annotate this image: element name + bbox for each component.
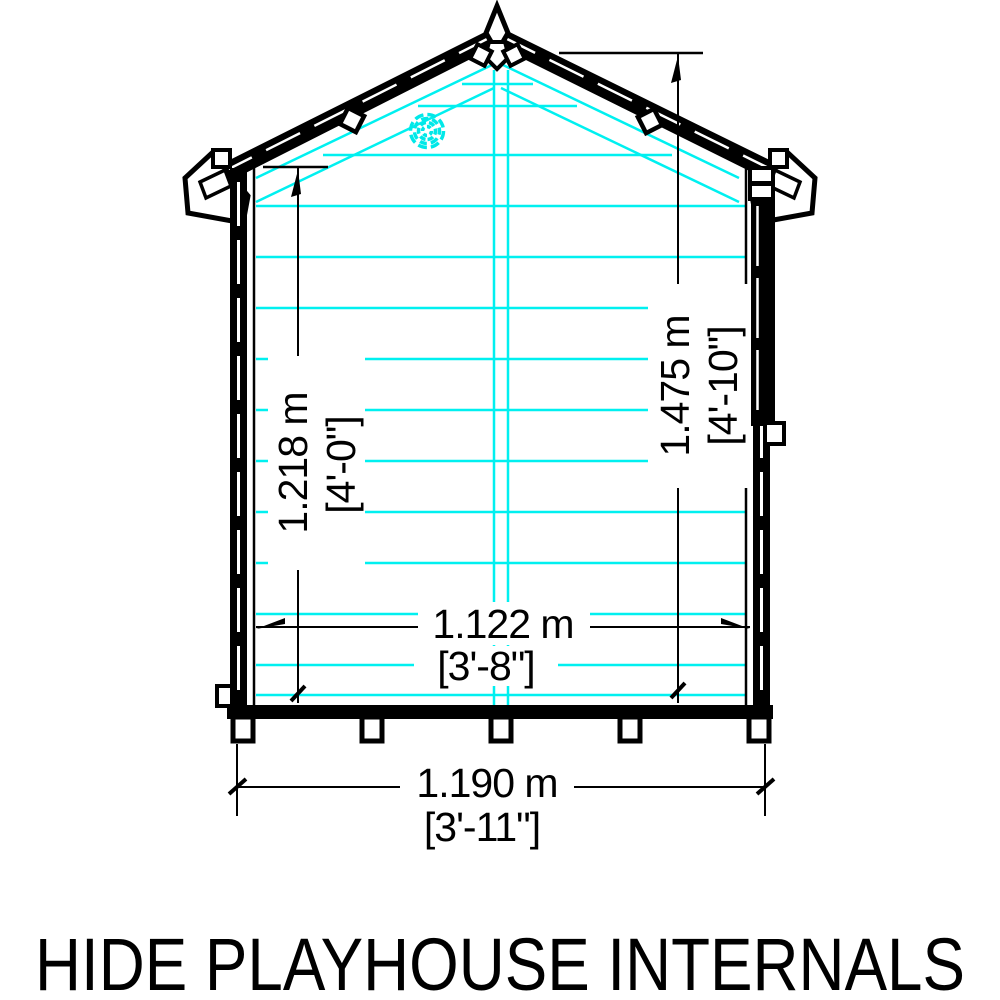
internal-width-imperial: [3'-8"]: [437, 643, 534, 689]
knot-mark: [409, 113, 444, 148]
drawing-canvas: 1.218 m [4'-0"] 1.475 m [4'-10"] 1.122 m…: [0, 0, 1000, 1000]
base-width-imperial: [3'-11"]: [424, 804, 540, 850]
eaves-height-metric: 1.218 m: [270, 392, 316, 533]
eaves-height-imperial: [4'-0"]: [318, 416, 364, 513]
wall-right: [746, 168, 784, 710]
playhouse-elevation-drawing: 1.218 m [4'-0"] 1.475 m [4'-10"] 1.122 m…: [0, 0, 1000, 1000]
ridge-height-imperial: [4'-10"]: [700, 326, 746, 445]
ridge-height-metric: 1.475 m: [652, 315, 698, 456]
base-width-metric: 1.190 m: [416, 760, 557, 806]
dimension-base-width: 1.190 m [3'-11"]: [229, 744, 774, 850]
wall-left: [217, 168, 254, 710]
floor-and-bearers: [227, 705, 773, 741]
drawing-title: HIDE PLAYHOUSE INTERNALS: [35, 923, 965, 1000]
internal-width-metric: 1.122 m: [432, 601, 573, 647]
